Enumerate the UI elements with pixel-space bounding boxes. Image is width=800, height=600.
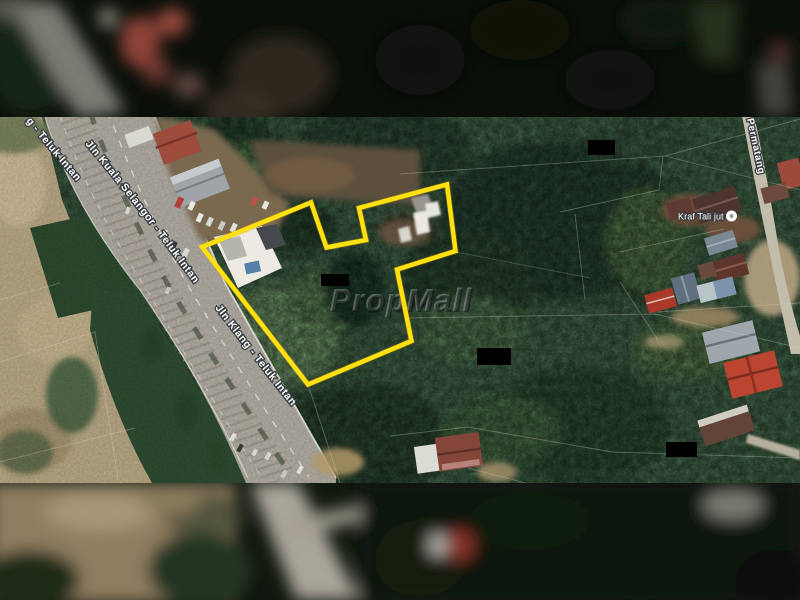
svg-text:Kraf Tali jut: Kraf Tali jut xyxy=(678,212,724,222)
